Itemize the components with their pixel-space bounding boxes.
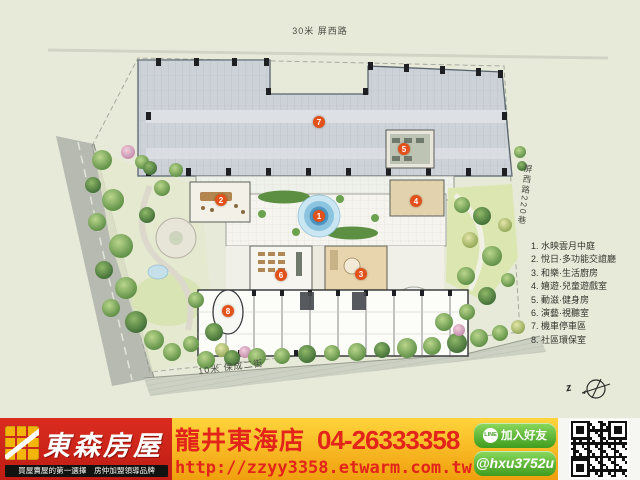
line-id-button[interactable]: @hxu3752u <box>474 451 556 476</box>
brand-tagline: 買屋賣屋的第一選擇 房仲加盟領導品牌 <box>5 465 168 477</box>
line-add-friend-button[interactable]: LINE 加入好友 <box>474 423 556 448</box>
real-estate-siteplan-flyer: 30米 屏西路 屏西路220巷 10米 保成二街 1. 水映雲月中庭2. 悅日·… <box>0 0 640 480</box>
legend-item: 7. 機車停車區 <box>531 320 637 333</box>
brand-name: 東森房屋 <box>43 424 163 463</box>
road-label-top: 30米 屏西路 <box>0 24 640 37</box>
brand-block: 東森房屋 買屋賣屋的第一選擇 房仲加盟領導品牌 <box>0 418 172 480</box>
contact-block: 龍井東海店 04-26333358 http://zzyy3358.etwarm… <box>172 418 472 480</box>
store-name: 龍井東海店 <box>175 421 305 457</box>
qr-code-pattern <box>569 419 629 479</box>
plan-marker-4: 4 <box>410 195 422 207</box>
legend-item: 5. 動滋·健身房 <box>531 294 637 307</box>
line-add-friend-label: 加入好友 <box>501 427 547 443</box>
legend-item: 4. 嬉遊·兒童遊戲室 <box>531 280 637 293</box>
plan-marker-3: 3 <box>355 268 367 280</box>
site-plan-graphic <box>0 0 640 418</box>
compass-north-indicator: z <box>560 372 616 406</box>
legend-item: 2. 悅日·多功能交誼廳 <box>531 253 637 266</box>
line-icon: LINE <box>483 428 498 443</box>
plan-legend: 1. 水映雲月中庭2. 悅日·多功能交誼廳3. 和樂·生活廚房4. 嬉遊·兒童遊… <box>531 240 637 347</box>
phone-number: 04-26333358 <box>317 425 459 456</box>
etwarm-logo-icon <box>5 426 39 460</box>
qr-code <box>558 418 640 480</box>
footer-banner: 東森房屋 買屋賣屋的第一選擇 房仲加盟領導品牌 龍井東海店 04-2633335… <box>0 418 640 480</box>
legend-item: 3. 和樂·生活廚房 <box>531 267 637 280</box>
plan-marker-2: 2 <box>215 194 227 206</box>
plan-marker-7: 7 <box>313 116 325 128</box>
plan-marker-5: 5 <box>398 143 410 155</box>
legend-item: 1. 水映雲月中庭 <box>531 240 637 253</box>
legend-item: 6. 演藝·視聽室 <box>531 307 637 320</box>
plan-marker-8: 8 <box>222 305 234 317</box>
plan-marker-1: 1 <box>313 210 325 222</box>
legend-item: 8. 社區環保室 <box>531 334 637 347</box>
plan-marker-6: 6 <box>275 269 287 281</box>
website-url[interactable]: http://zzyy3358.etwarm.com.tw <box>175 458 472 478</box>
line-block: LINE 加入好友 @hxu3752u <box>472 418 558 480</box>
